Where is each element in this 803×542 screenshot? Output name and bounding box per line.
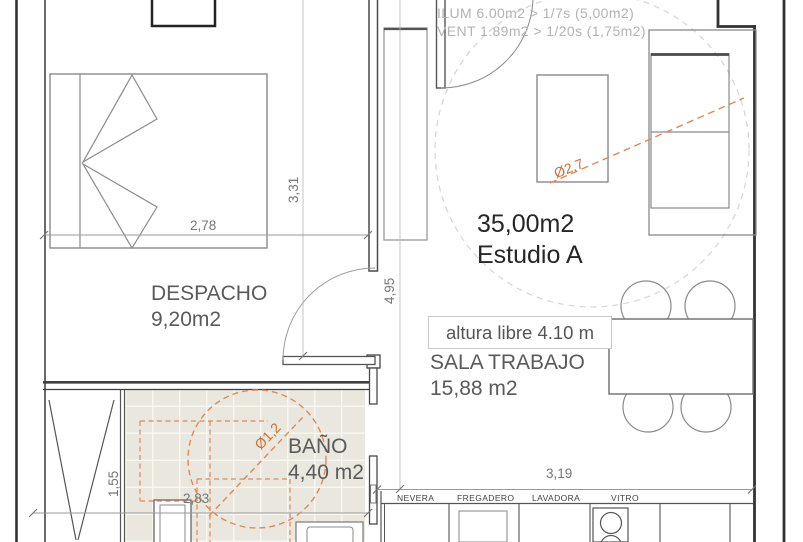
bano-name-label: BAÑO (288, 436, 348, 457)
despacho-name-label: DESPACHO (151, 283, 267, 304)
sofa-seats (651, 54, 729, 208)
ceiling-height-note: altura libre 4.10 m (428, 316, 612, 349)
despacho-door-swing-arc (283, 268, 375, 360)
work-table (609, 319, 753, 394)
bed-blanket-fold-top (83, 75, 157, 162)
sala-area-label: 15,88 m2 (430, 378, 518, 399)
kitchen-sink (459, 511, 507, 542)
dim-estudio-height: 4,95 (383, 278, 397, 304)
despacho-door-leaf (283, 357, 375, 365)
column-flue (152, 0, 215, 26)
despacho-area-label: 9,20m2 (151, 309, 221, 330)
washbasin-bowl (160, 505, 185, 542)
kitchen-label-fregadero: FREGADERO (457, 494, 514, 503)
dim-despacho-height: 3,31 (287, 177, 301, 203)
bath-door-frame (371, 485, 377, 503)
dim-bed-width: 2,78 (190, 219, 216, 233)
sala-name-label: SALA TRABAJO (430, 352, 585, 373)
dim-bano-width: 2,83 (183, 492, 209, 506)
cupboard (384, 28, 427, 240)
ilum-note: ILUM 6.00m2 > 1/7s (5,00m2) (437, 6, 634, 20)
vent-note: VENT 1.89m2 > 1/20s (1,75m2) (437, 24, 646, 38)
wall-despacho-estudio (369, 0, 378, 271)
dim-kitchen-width: 3,19 (546, 467, 572, 481)
floor-plan: ILUM 6.00m2 > 1/7s (5,00m2) VENT 1.89m2 … (0, 0, 803, 542)
plan-linework (0, 0, 803, 542)
wall-post-bath-door-top (370, 368, 378, 404)
kitchen-label-lavadora: LAVADORA (532, 494, 580, 503)
estudio-name-label: Estudio A (477, 243, 583, 268)
bano-area-label: 4,40 m2 (288, 462, 364, 483)
estudio-area-label: 35,00m2 (477, 212, 574, 237)
dim-closet-height: 1,55 (107, 471, 121, 497)
kitchen-label-nevera: NEVERA (397, 494, 434, 503)
bed (50, 74, 267, 248)
closet-chevron-left (49, 400, 76, 540)
toilet-bowl (307, 527, 353, 542)
turning-circle-bano (188, 390, 326, 528)
kitchen-label-vitro: VITRO (611, 494, 639, 503)
